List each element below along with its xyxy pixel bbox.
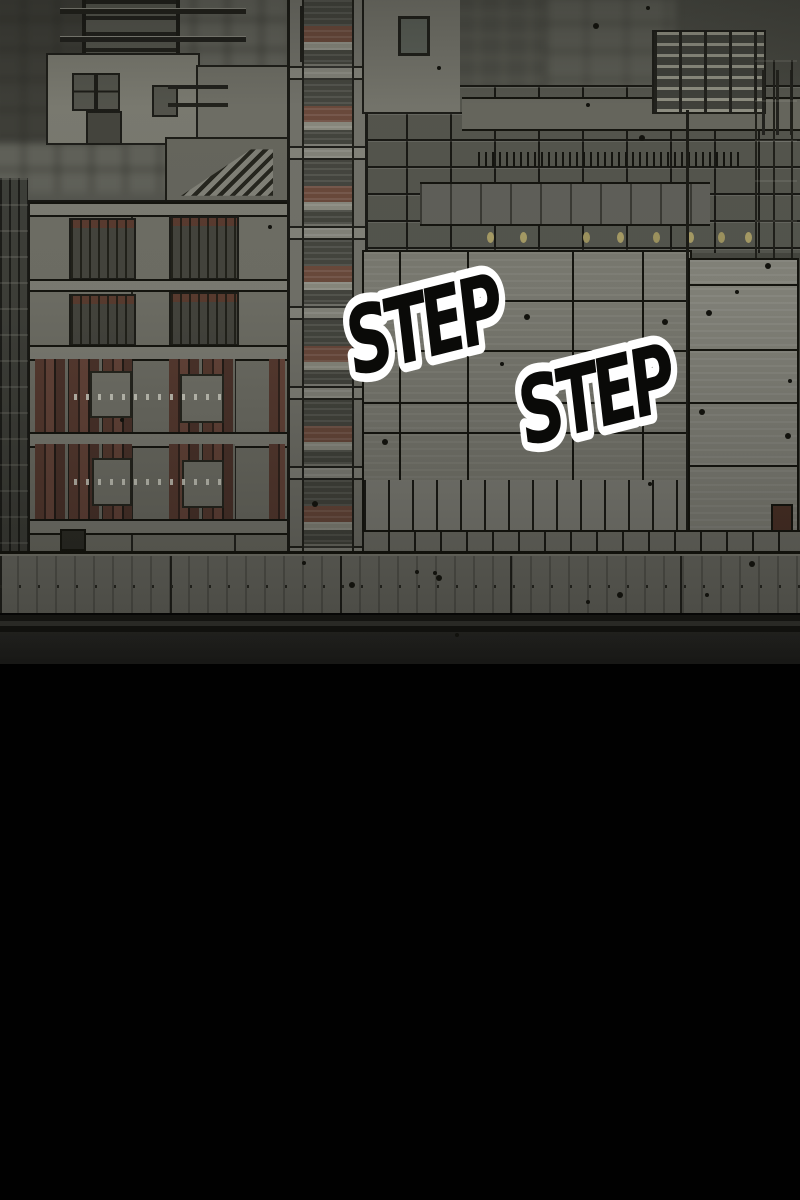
- form-tie-row: [74, 394, 224, 400]
- window-opening: [169, 292, 239, 346]
- window-opening: [69, 218, 136, 280]
- construction-fence: [0, 551, 800, 618]
- sfx-step-first: STEP STEP: [328, 244, 518, 404]
- formwork-panels: [269, 359, 285, 432]
- sfx-step-second: STEP STEP: [500, 314, 690, 474]
- rooftop-room: [46, 53, 200, 145]
- fence-rivet-row: [0, 585, 800, 588]
- panel-wall-base-row: [364, 480, 690, 534]
- window: [152, 85, 178, 117]
- panel-wall-right: [688, 258, 799, 536]
- window: [72, 73, 120, 111]
- tower-rail: [60, 36, 246, 42]
- scaffold-rail: [168, 103, 228, 107]
- form-tie-row: [74, 479, 224, 485]
- sfx-fill-text: STEP: [335, 254, 515, 398]
- road-surface: [0, 632, 800, 664]
- stairwell-block: [165, 137, 289, 207]
- wall-door: [771, 504, 793, 532]
- door: [86, 111, 122, 145]
- floor-slab: [30, 279, 287, 292]
- left-building: [28, 200, 289, 557]
- scaffold-rail: [168, 85, 228, 89]
- scaffold-walkway-lower: [420, 182, 710, 226]
- rebar-spikes: [478, 152, 740, 167]
- window-opening: [169, 216, 239, 280]
- ink-splatter-dots: [0, 0, 4, 4]
- rooftop-annex: [196, 65, 289, 144]
- tower-rail: [60, 8, 246, 14]
- annex-window: [398, 16, 430, 56]
- window-mullion: [74, 75, 118, 109]
- floor-slab: [30, 202, 287, 217]
- construction-lamps-row: [487, 232, 494, 243]
- steel-frame-structure: [652, 30, 766, 114]
- tower-annex: [362, 0, 460, 114]
- staircase: [177, 145, 277, 199]
- construction-site-scene: STEP STEP STEP STEP: [0, 0, 800, 664]
- ground-door: [60, 529, 86, 551]
- left-edge-scaffold: [0, 178, 28, 556]
- black-panel-area: [0, 664, 800, 1200]
- formwork-panels: [269, 444, 285, 519]
- webtoon-panel: STEP STEP STEP STEP: [0, 0, 800, 1200]
- sfx-fill-text: STEP: [507, 324, 687, 468]
- window-opening: [69, 294, 136, 346]
